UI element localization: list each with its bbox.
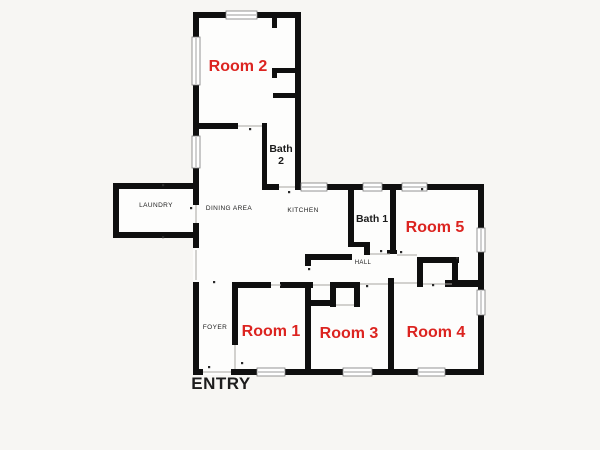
wall <box>113 232 199 238</box>
door-tick <box>162 236 164 238</box>
room-floor <box>113 183 199 238</box>
wall <box>311 300 335 306</box>
label-room-1: Room 1 <box>242 323 301 340</box>
wall <box>285 369 343 375</box>
room-floor <box>193 129 301 190</box>
wall <box>193 12 199 38</box>
wall <box>232 282 238 345</box>
door-tick <box>456 257 458 259</box>
label-bath-1: Bath 1 <box>356 213 388 225</box>
door-tick <box>288 191 290 193</box>
wall <box>305 282 311 375</box>
wall <box>257 12 301 18</box>
door-tick <box>241 362 243 364</box>
label-bath-2: 2 <box>278 155 284 167</box>
door-tick <box>432 284 434 286</box>
label-dining-area: DINING AREA <box>206 205 253 212</box>
wall <box>262 123 267 190</box>
wall <box>295 12 301 190</box>
wall <box>273 93 295 98</box>
wall <box>272 68 277 78</box>
label-hall: HALL <box>355 260 372 266</box>
label-room-2: Room 2 <box>209 58 268 75</box>
door-tick <box>421 188 423 190</box>
wall <box>478 315 484 375</box>
wall <box>113 183 119 238</box>
wall <box>388 278 394 375</box>
wall <box>193 223 199 248</box>
label-room-4: Room 4 <box>407 324 466 341</box>
wall <box>417 257 423 287</box>
wall <box>113 183 199 189</box>
door-tick <box>380 250 382 252</box>
label-kitchen: KITCHEN <box>287 207 318 214</box>
wall <box>364 242 370 255</box>
door-tick <box>213 281 215 283</box>
label-bath-2: Bath <box>269 143 292 155</box>
wall <box>390 190 396 252</box>
wall <box>193 123 238 129</box>
door-tick <box>366 285 368 287</box>
wall <box>272 18 277 28</box>
wall <box>478 252 484 290</box>
wall <box>348 190 354 242</box>
label-room-3: Room 3 <box>320 325 379 342</box>
wall <box>305 254 311 266</box>
label-room-5: Room 5 <box>406 219 465 236</box>
door-tick <box>249 128 251 130</box>
door-tick <box>208 366 210 368</box>
wall <box>445 369 484 375</box>
label-foyer: FOYER <box>203 324 227 331</box>
wall <box>387 250 397 254</box>
wall <box>354 282 360 307</box>
wall <box>327 184 363 190</box>
label-laundry: LAUNDRY <box>139 202 173 209</box>
floor-plan-drawing: Bath2Bath 1LAUNDRYDINING AREAKITCHENHALL… <box>0 0 600 450</box>
wall <box>372 369 418 375</box>
room-floor <box>193 184 484 375</box>
floor-plan-page: Bath2Bath 1LAUNDRYDINING AREAKITCHENHALL… <box>0 0 600 450</box>
door-tick <box>308 268 310 270</box>
wall <box>305 254 352 260</box>
wall <box>427 184 484 190</box>
door-tick <box>162 184 164 186</box>
door-tick <box>400 251 402 253</box>
wall <box>262 184 279 190</box>
wall <box>478 184 484 228</box>
door-tick <box>190 207 192 209</box>
label-entry: ENTRY <box>191 374 251 393</box>
wall <box>193 282 199 375</box>
wall <box>382 184 402 190</box>
wall <box>193 189 199 205</box>
